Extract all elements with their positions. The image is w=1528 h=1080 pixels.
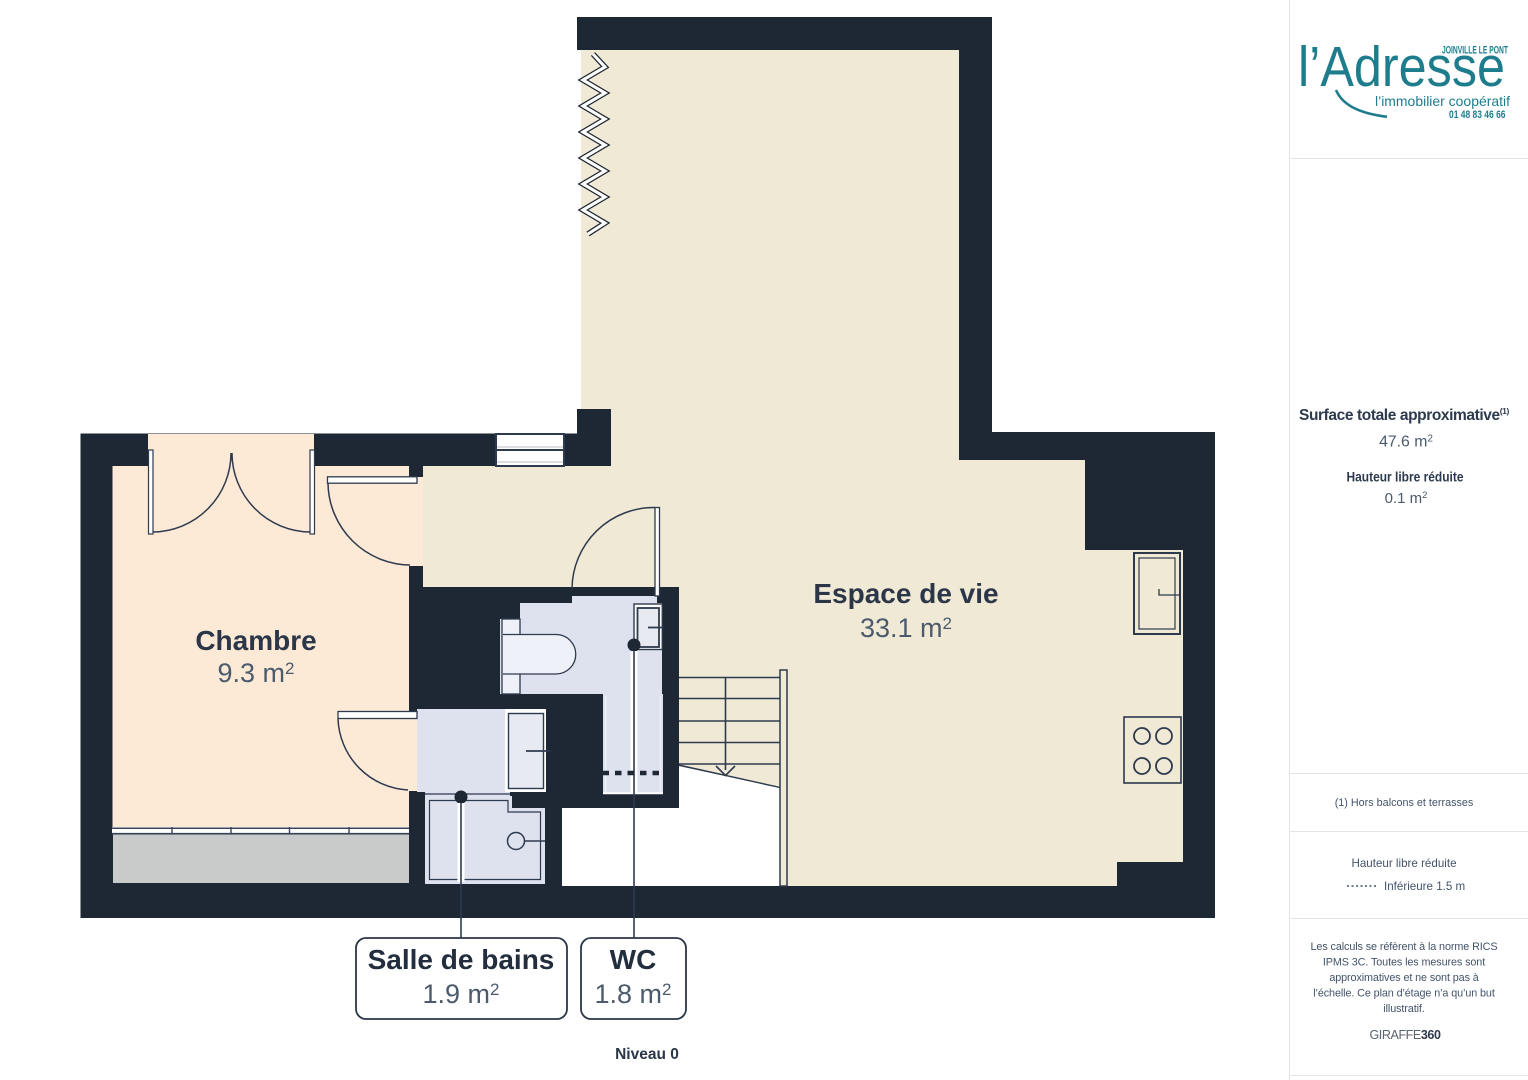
svg-text:l’Adresse: l’Adresse [1298, 35, 1505, 99]
svg-text:illustratif.: illustratif. [1383, 1003, 1424, 1015]
svg-text:l’échelle. Ce plan d’étage n’a: l’échelle. Ce plan d’étage n’a qu’un but [1313, 988, 1495, 1000]
svg-text:Hauteur libre réduite: Hauteur libre réduite [1351, 857, 1456, 870]
svg-text:Inférieure 1.5 m: Inférieure 1.5 m [1384, 880, 1465, 893]
svg-text:1.9 m2: 1.9 m2 [423, 979, 500, 1009]
svg-text:Hauteur libre réduite: Hauteur libre réduite [1347, 469, 1464, 485]
svg-text:33.1 m2: 33.1 m2 [860, 613, 952, 643]
svg-text:IPMS 3C. Toutes les mesures so: IPMS 3C. Toutes les mesures sont [1323, 957, 1485, 969]
svg-text:01 48 83 46 66: 01 48 83 46 66 [1449, 109, 1506, 121]
svg-text:WC: WC [610, 944, 657, 975]
svg-text:Surface totale approximative(1: Surface totale approximative(1) [1299, 406, 1509, 424]
svg-text:47.6 m2: 47.6 m2 [1379, 434, 1433, 451]
svg-text:0.1 m2: 0.1 m2 [1385, 490, 1428, 507]
svg-text:Les calculs se réfèrent à la n: Les calculs se réfèrent à la norme RICS [1311, 941, 1498, 953]
svg-text:Chambre: Chambre [195, 625, 316, 656]
svg-text:l’immobilier coopératif: l’immobilier coopératif [1375, 93, 1510, 109]
svg-text:1.8 m2: 1.8 m2 [595, 979, 672, 1009]
svg-text:approximatives et ne sont pas: approximatives et ne sont pas à [1329, 972, 1478, 984]
svg-text:(1) Hors balcons et terrasses: (1) Hors balcons et terrasses [1335, 797, 1474, 809]
svg-text:Salle de bains: Salle de bains [368, 944, 555, 975]
svg-text:Niveau 0: Niveau 0 [615, 1046, 679, 1063]
svg-text:GIRAFFE360: GIRAFFE360 [1369, 1028, 1440, 1042]
svg-text:Espace de vie: Espace de vie [813, 578, 998, 609]
svg-text:9.3 m2: 9.3 m2 [218, 658, 295, 688]
